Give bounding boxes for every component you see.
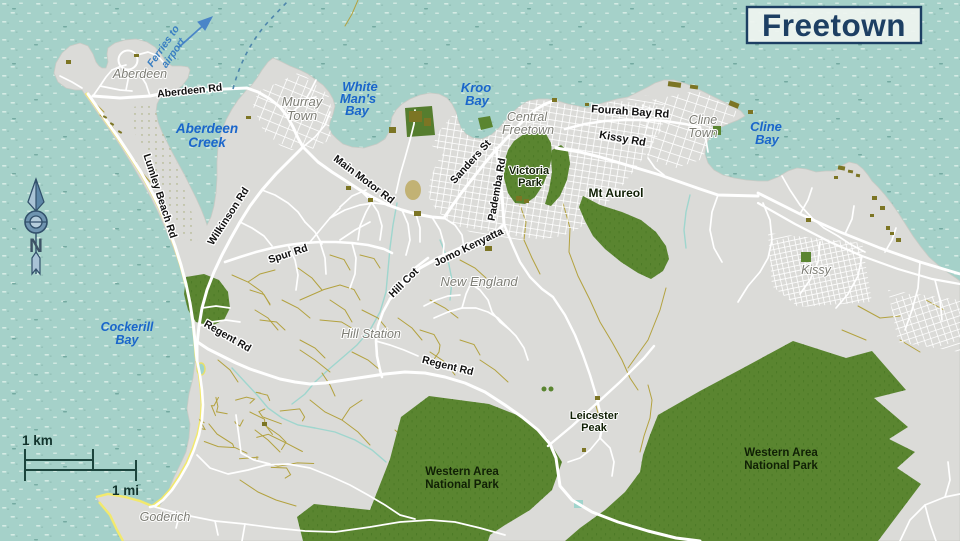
svg-text:Peak: Peak	[581, 422, 608, 434]
svg-text:Western Area: Western Area	[425, 466, 499, 478]
svg-text:Aberdeen: Aberdeen	[175, 121, 238, 136]
svg-text:Hill Station: Hill Station	[341, 327, 401, 341]
svg-text:Creek: Creek	[188, 135, 227, 150]
svg-text:Mt Aureol: Mt Aureol	[589, 186, 644, 200]
svg-text:Central: Central	[507, 110, 549, 124]
svg-text:Western Area: Western Area	[744, 447, 818, 459]
svg-text:Leicester: Leicester	[570, 410, 619, 422]
svg-text:Murray: Murray	[282, 94, 324, 109]
svg-text:Victoria: Victoria	[509, 165, 550, 177]
svg-text:1 mi: 1 mi	[112, 483, 139, 498]
svg-text:N: N	[29, 236, 43, 257]
svg-text:New England: New England	[440, 274, 518, 289]
svg-text:Bay: Bay	[755, 132, 780, 147]
svg-text:National Park: National Park	[744, 460, 818, 472]
svg-text:Town: Town	[287, 108, 318, 123]
svg-text:Goderich: Goderich	[140, 510, 191, 524]
svg-text:1 km: 1 km	[22, 433, 53, 448]
svg-text:Kissy: Kissy	[801, 263, 832, 277]
svg-text:Cockerill: Cockerill	[101, 320, 154, 334]
svg-text:Freetown: Freetown	[502, 123, 554, 137]
svg-text:National Park: National Park	[425, 479, 499, 491]
svg-text:Bay: Bay	[116, 333, 140, 347]
svg-text:Bay: Bay	[465, 93, 490, 108]
svg-text:Bay: Bay	[345, 103, 370, 118]
svg-text:Freetown: Freetown	[762, 7, 906, 43]
svg-text:Town: Town	[688, 126, 717, 140]
svg-text:Cline: Cline	[689, 113, 718, 127]
svg-text:Park: Park	[518, 177, 543, 189]
svg-text:Aberdeen: Aberdeen	[112, 67, 167, 81]
